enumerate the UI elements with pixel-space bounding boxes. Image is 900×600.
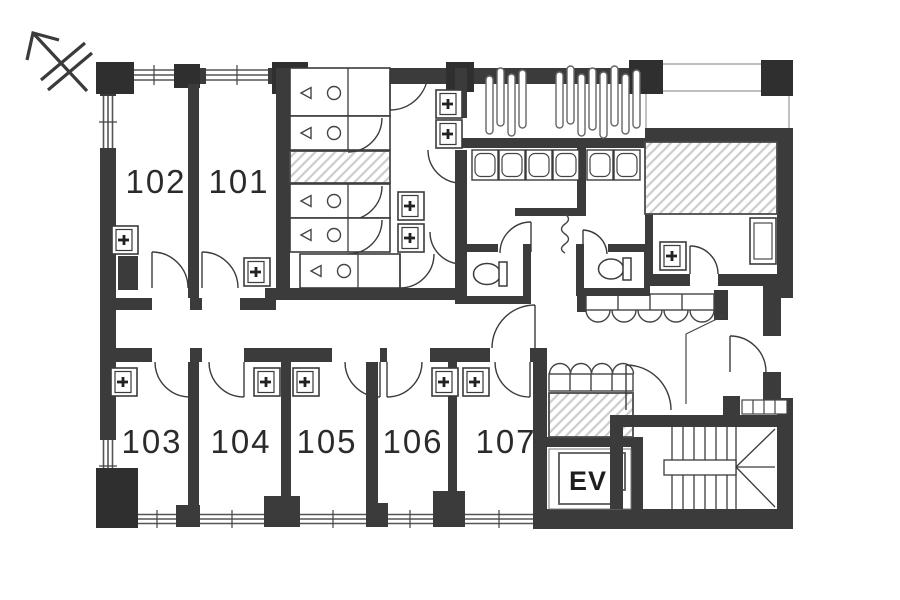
washer-icon: [293, 368, 319, 396]
shoe-shelf: [742, 400, 787, 414]
counter-seat-icon: [612, 310, 636, 322]
counter-seat-icon: [571, 364, 592, 375]
washer-icon: [254, 368, 280, 396]
door-room-103: [155, 362, 190, 397]
counter-seat-icon: [638, 310, 662, 322]
plant-icon: [600, 72, 607, 138]
room-label-105: 105: [296, 423, 357, 460]
dining-counter-upper: [586, 294, 714, 322]
door-room-104: [209, 362, 244, 397]
kitchen-station-icon: [587, 150, 613, 180]
floor-plan-canvas: EV 102 10: [0, 0, 900, 600]
unit-bath-3: [290, 184, 390, 220]
counter-seat-icon: [690, 310, 714, 322]
kitchen-station-icon: [472, 150, 498, 180]
stair-winder: [736, 467, 775, 507]
counter-seat-icon: [664, 310, 688, 322]
washer-icon: [398, 192, 424, 220]
washer-icon: [112, 226, 138, 254]
washer-icon: [432, 368, 458, 396]
plant-icon: [578, 74, 585, 136]
counter-seat-icon: [586, 310, 610, 322]
plant-icon: [508, 74, 515, 136]
unit-bath-2: [290, 116, 390, 152]
pipe-shaft-core: [290, 151, 390, 183]
porch-ramp: [686, 316, 723, 334]
entrance: [686, 316, 766, 404]
toilet-tank: [499, 262, 507, 286]
toilet-tank: [623, 258, 631, 280]
kitchen-station-icon: [526, 150, 552, 180]
toilet-room-2: [576, 230, 650, 296]
room-label-106: 106: [382, 423, 443, 460]
toilet-rooms: [455, 214, 650, 304]
elevator-label: EV: [569, 466, 607, 496]
washer-icon: [398, 224, 424, 252]
room-label-104: 104: [210, 423, 271, 460]
unit-bath-4: [290, 218, 390, 254]
stair-winder: [736, 429, 775, 467]
room-label-107: 107: [475, 423, 536, 460]
planting: [486, 66, 640, 138]
washer-icon: [436, 120, 462, 148]
plant-icon: [497, 68, 504, 126]
door-corridor-hall: [492, 305, 535, 348]
entrance-door: [730, 336, 766, 372]
unit-bath-5: [300, 254, 434, 288]
bench-counter-lower: [549, 364, 634, 392]
toilet-icon: [474, 264, 501, 285]
washer-icon: [436, 90, 462, 118]
north-arrow-icon: [27, 33, 92, 91]
plant-icon: [622, 74, 629, 134]
kitchen-station-icon: [614, 150, 640, 180]
room-label-101: 101: [208, 163, 269, 200]
plant-icon: [611, 66, 618, 126]
shower-room: [690, 218, 776, 274]
washer-icon: [463, 368, 489, 396]
counter-seat-icon: [550, 364, 571, 375]
door-room-107: [495, 362, 530, 397]
room-label-102: 102: [125, 163, 186, 200]
curtain-icon: [562, 214, 569, 253]
stair-rail: [664, 460, 736, 475]
toilet-icon: [599, 259, 624, 279]
plant-icon: [633, 70, 640, 128]
door-room-101: [202, 252, 238, 288]
washer-icon: [244, 258, 270, 286]
kitchen-station-icon: [553, 150, 579, 180]
door-room-102: [152, 252, 188, 288]
plant-icon: [486, 76, 493, 134]
plant-icon: [556, 72, 563, 128]
floor-plan: EV 102 10: [0, 0, 900, 600]
door-room-106: [387, 362, 422, 397]
void-top-right: [645, 142, 777, 214]
kitchen-station-icon: [499, 150, 525, 180]
room-label-103: 103: [121, 423, 182, 460]
plant-icon: [589, 68, 596, 130]
plant-icon: [567, 66, 574, 124]
plant-icon: [519, 70, 526, 128]
counter-seat-icon: [592, 364, 613, 375]
washer-icon: [660, 242, 686, 270]
kitchen-counter: [472, 150, 640, 180]
washer-icon: [111, 368, 137, 396]
